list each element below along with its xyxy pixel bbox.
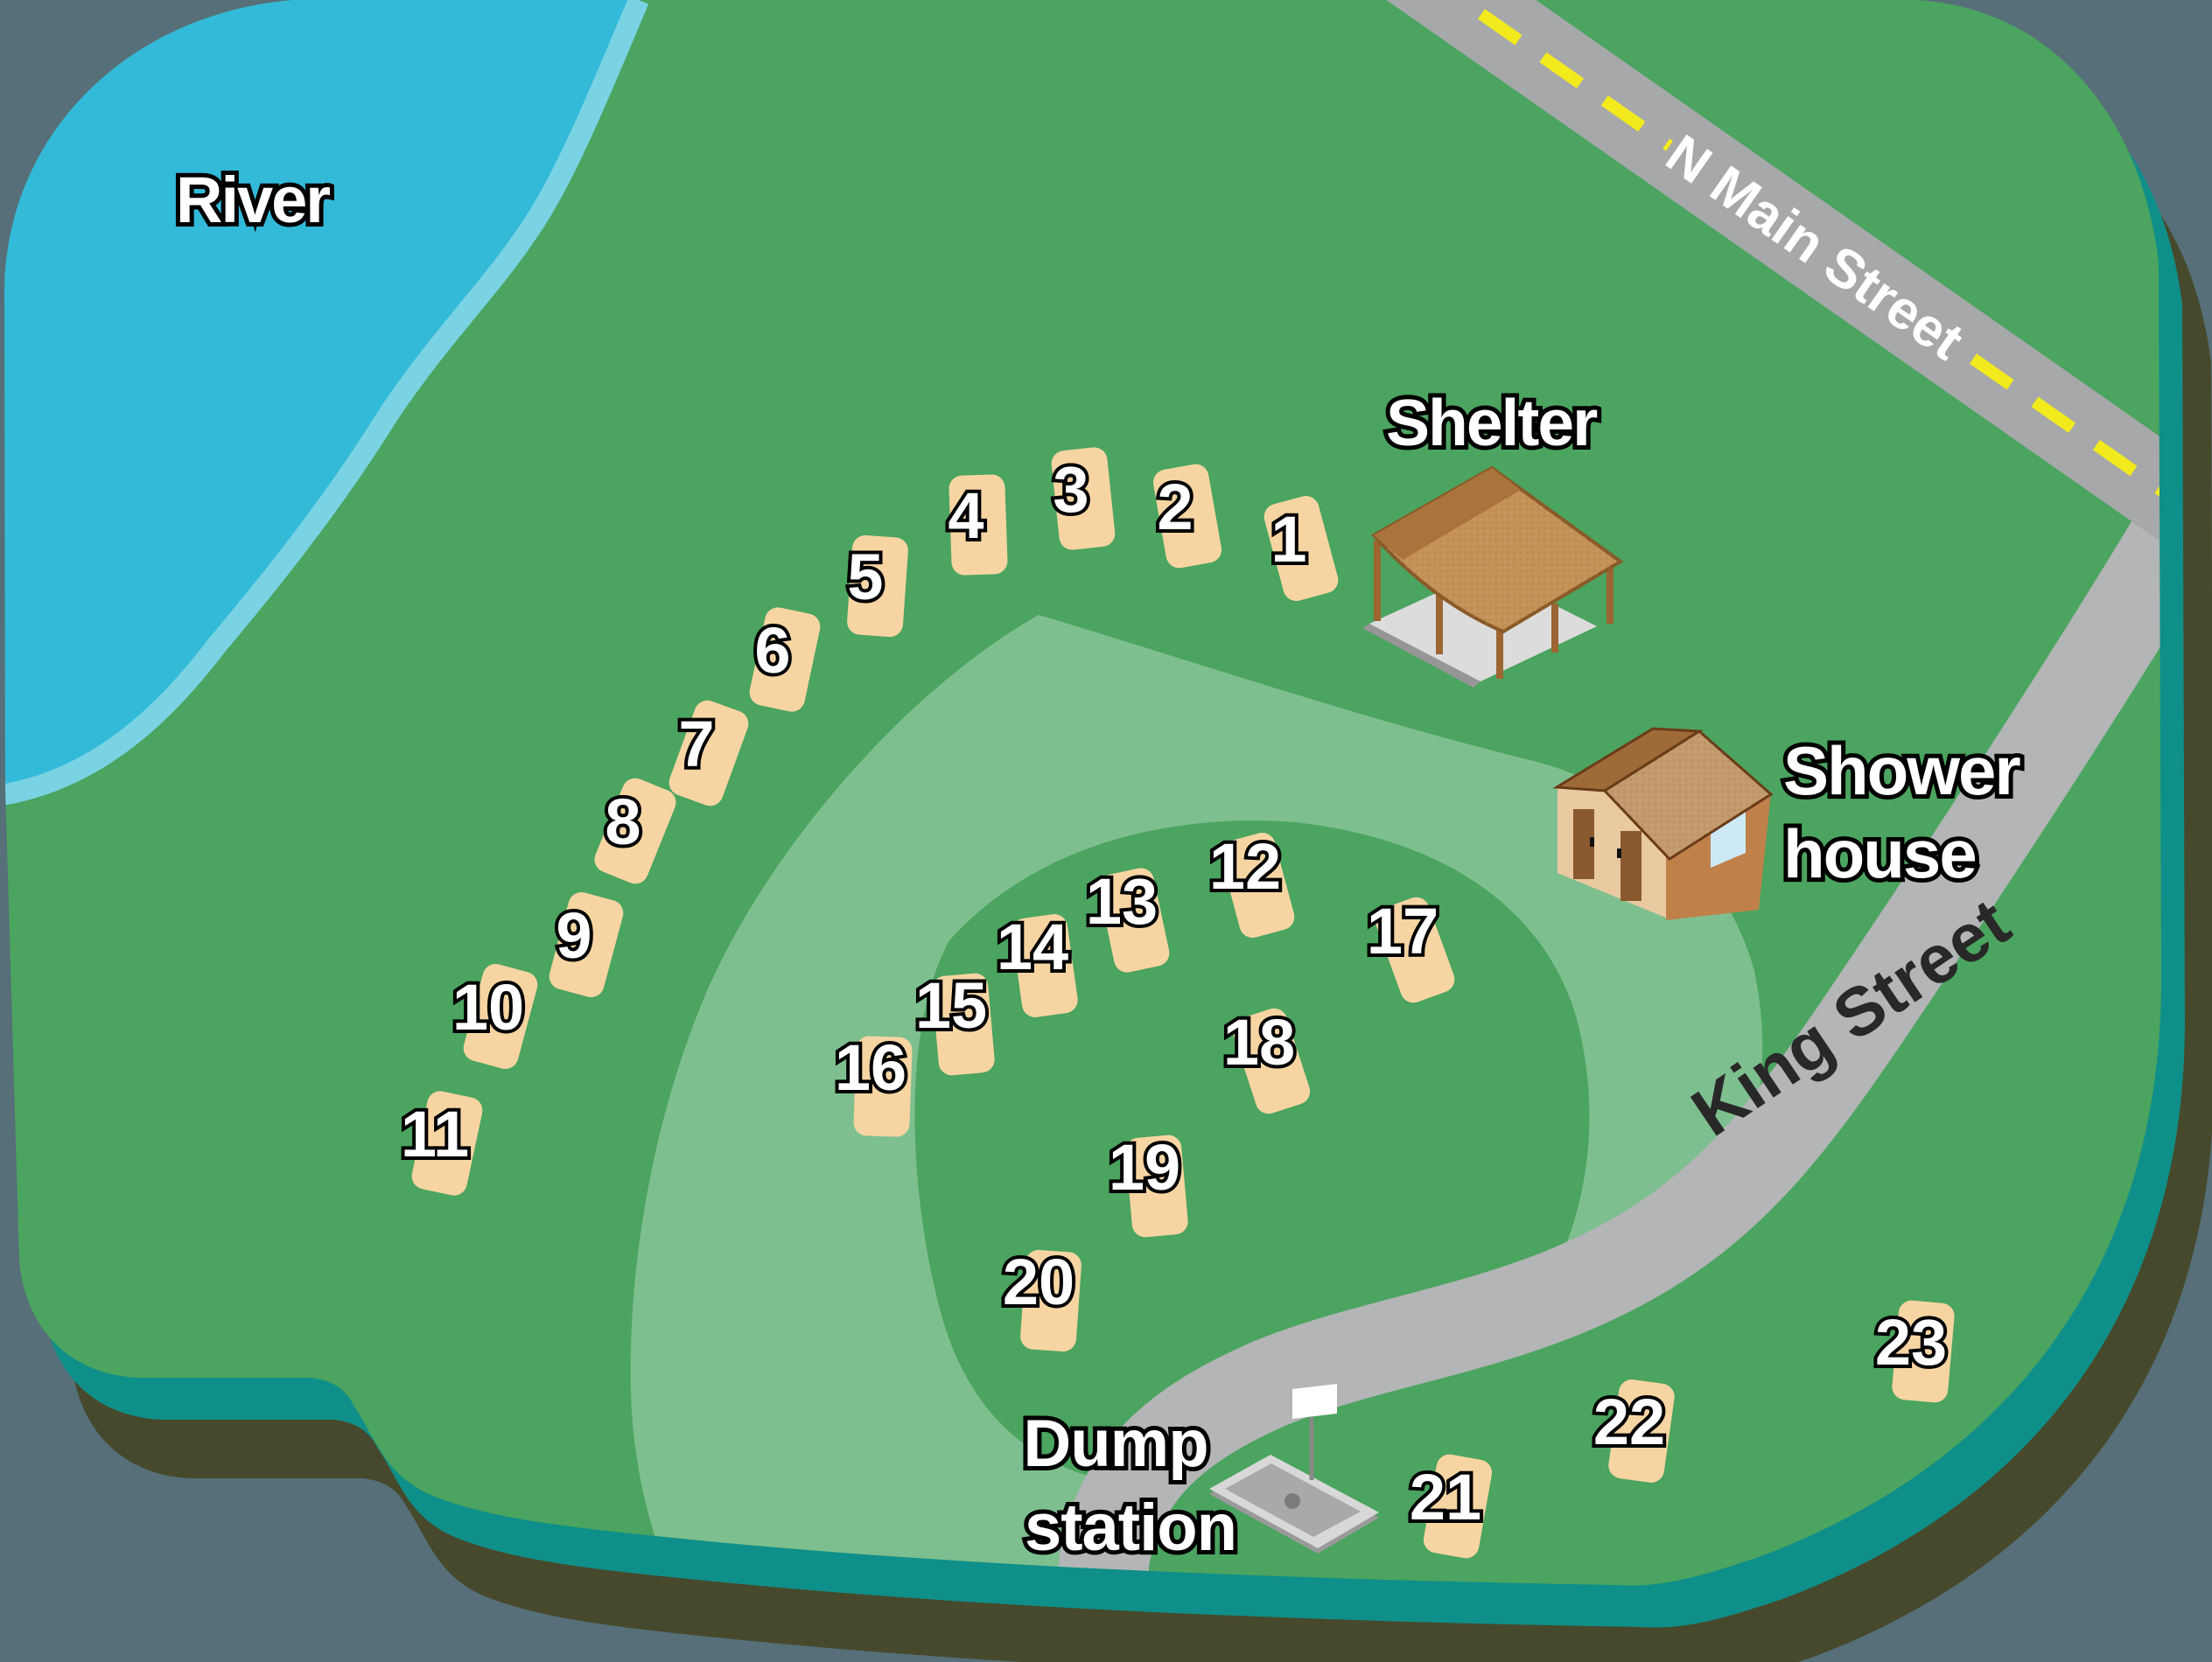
svg-text:16: 16	[835, 1031, 906, 1104]
svg-text:10: 10	[452, 971, 524, 1044]
svg-text:3: 3	[1053, 453, 1088, 526]
svg-text:Shelter: Shelter	[1386, 386, 1598, 459]
svg-text:8: 8	[605, 786, 640, 858]
svg-text:19: 19	[1109, 1131, 1180, 1204]
svg-text:22: 22	[1593, 1386, 1665, 1458]
svg-text:Shower: Shower	[1783, 732, 2020, 809]
svg-text:23: 23	[1875, 1306, 1947, 1379]
svg-text:17: 17	[1367, 895, 1438, 967]
svg-text:6: 6	[754, 614, 790, 687]
svg-text:River: River	[176, 164, 330, 236]
svg-text:13: 13	[1086, 865, 1158, 938]
svg-text:Dump: Dump	[1023, 1407, 1207, 1481]
svg-text:4: 4	[948, 479, 983, 552]
svg-text:15: 15	[915, 969, 987, 1042]
svg-text:12: 12	[1209, 830, 1281, 903]
svg-text:house: house	[1783, 815, 1976, 892]
svg-text:station: station	[1025, 1491, 1236, 1565]
svg-text:1: 1	[1270, 503, 1306, 576]
svg-text:5: 5	[847, 541, 883, 613]
svg-text:7: 7	[678, 708, 714, 780]
svg-text:20: 20	[1003, 1246, 1074, 1318]
svg-text:21: 21	[1410, 1461, 1481, 1533]
svg-text:11: 11	[401, 1098, 469, 1170]
svg-text:18: 18	[1223, 1006, 1295, 1079]
svg-text:14: 14	[997, 911, 1068, 983]
svg-text:2: 2	[1157, 471, 1193, 543]
svg-text:9: 9	[556, 899, 591, 972]
